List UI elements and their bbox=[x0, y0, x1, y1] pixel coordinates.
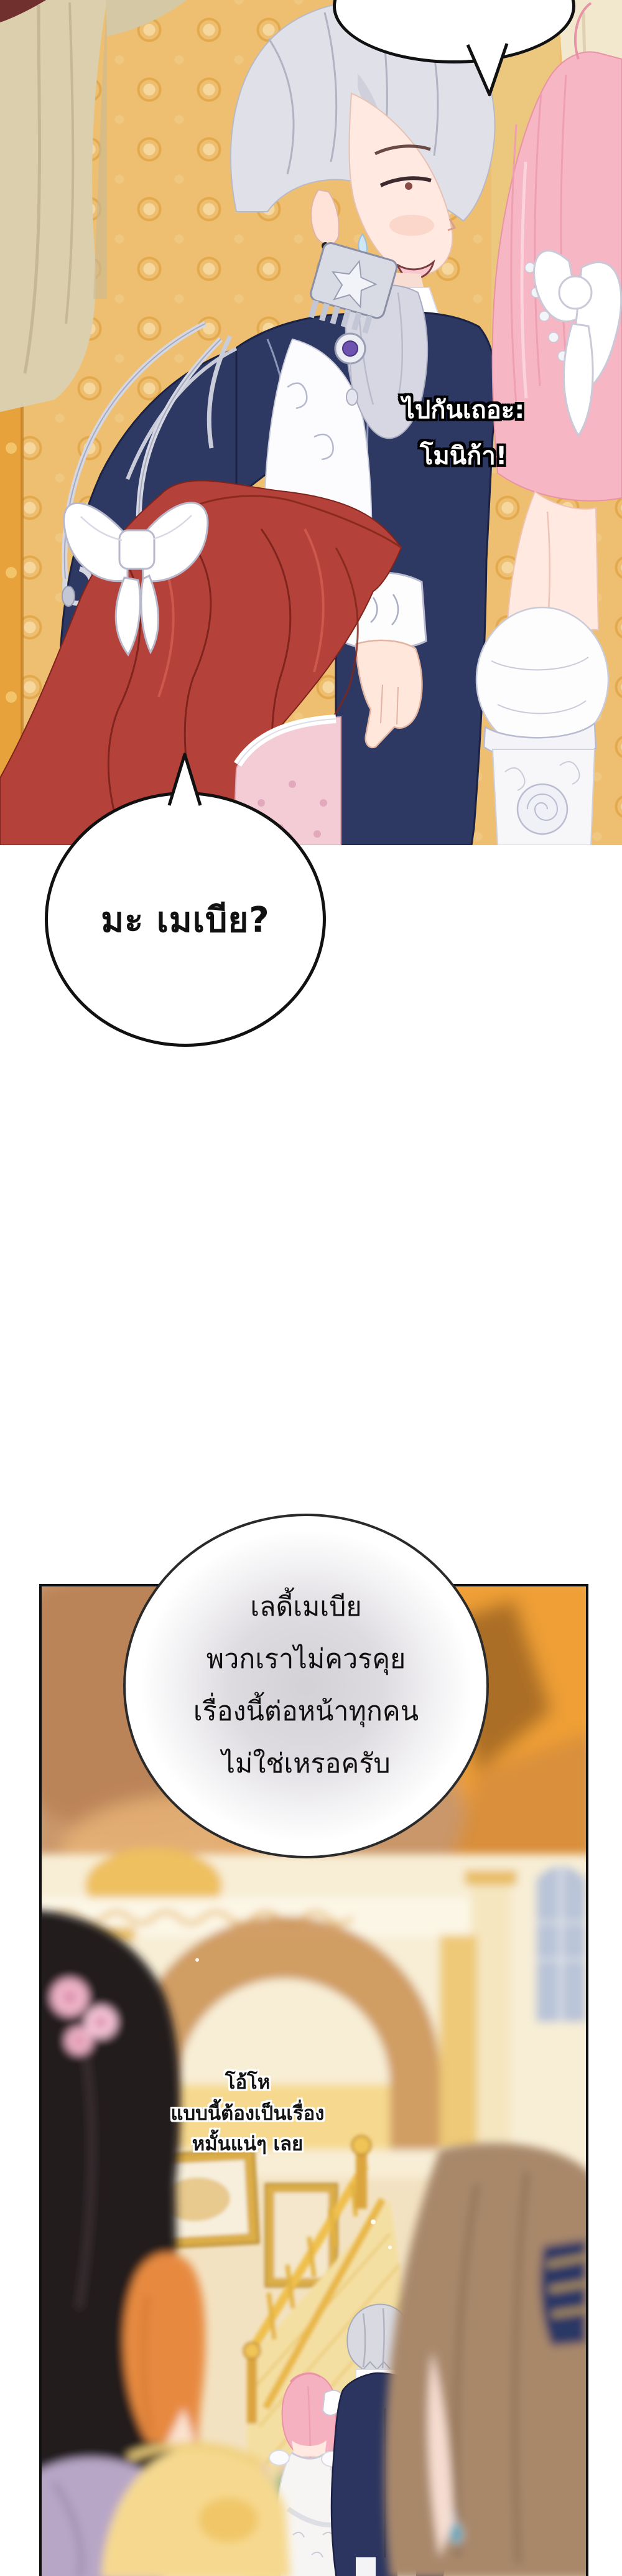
brown-hair-woman bbox=[384, 2143, 586, 2576]
fabric-rose bbox=[518, 784, 567, 834]
speech-bubble-empty-tail bbox=[460, 36, 519, 100]
speech-lady-line1: เลดี้เมเบีย bbox=[250, 1581, 361, 1634]
speech-lady-line2: พวกเราไม่ควรคุย bbox=[207, 1634, 406, 1686]
caption-monica-line2: โมนิก้า! bbox=[383, 433, 544, 479]
caption-whisper-line1: โอ้โห bbox=[92, 2068, 403, 2099]
drape-left bbox=[0, 0, 187, 412]
caption-monica-line1: ไปกันเถอะ: bbox=[383, 387, 544, 433]
speech-lady-line4: ไม่ใช่เหรอครับ bbox=[221, 1738, 390, 1791]
teal-earring bbox=[450, 2524, 462, 2544]
comic-page: ไปกันเถอะ: โมนิก้า! มะ เมเบีย? bbox=[0, 0, 622, 2576]
caption-whisper-line3: หมั้นแน่ๆ เลย bbox=[92, 2129, 403, 2160]
speech-lady-line3: เรื่องนี้ต่อหน้าทุกคน bbox=[193, 1686, 419, 1738]
caption-monica: ไปกันเถอะ: โมนิก้า! bbox=[383, 387, 544, 479]
speech-bubble-mabia-tail bbox=[160, 747, 210, 809]
speech-bubble-mabia-text: มะ เมเบีย? bbox=[101, 892, 270, 947]
speech-bubble-mabia: มะ เมเบีย? bbox=[45, 792, 326, 1047]
caption-whisper: โอ้โห แบบนี้ต้องเป็นเรื่อง หมั้นแน่ๆ เลย bbox=[92, 2068, 403, 2160]
speech-bubble-lady-mabia: เลดี้เมเบีย พวกเราไม่ควรคุย เรื่องนี้ต่อ… bbox=[123, 1514, 489, 1858]
navy-hair-bow bbox=[541, 2240, 586, 2346]
caption-whisper-line2: แบบนี้ต้องเป็นเรื่อง bbox=[92, 2099, 403, 2130]
yellow-dress-bow bbox=[198, 2498, 258, 2542]
